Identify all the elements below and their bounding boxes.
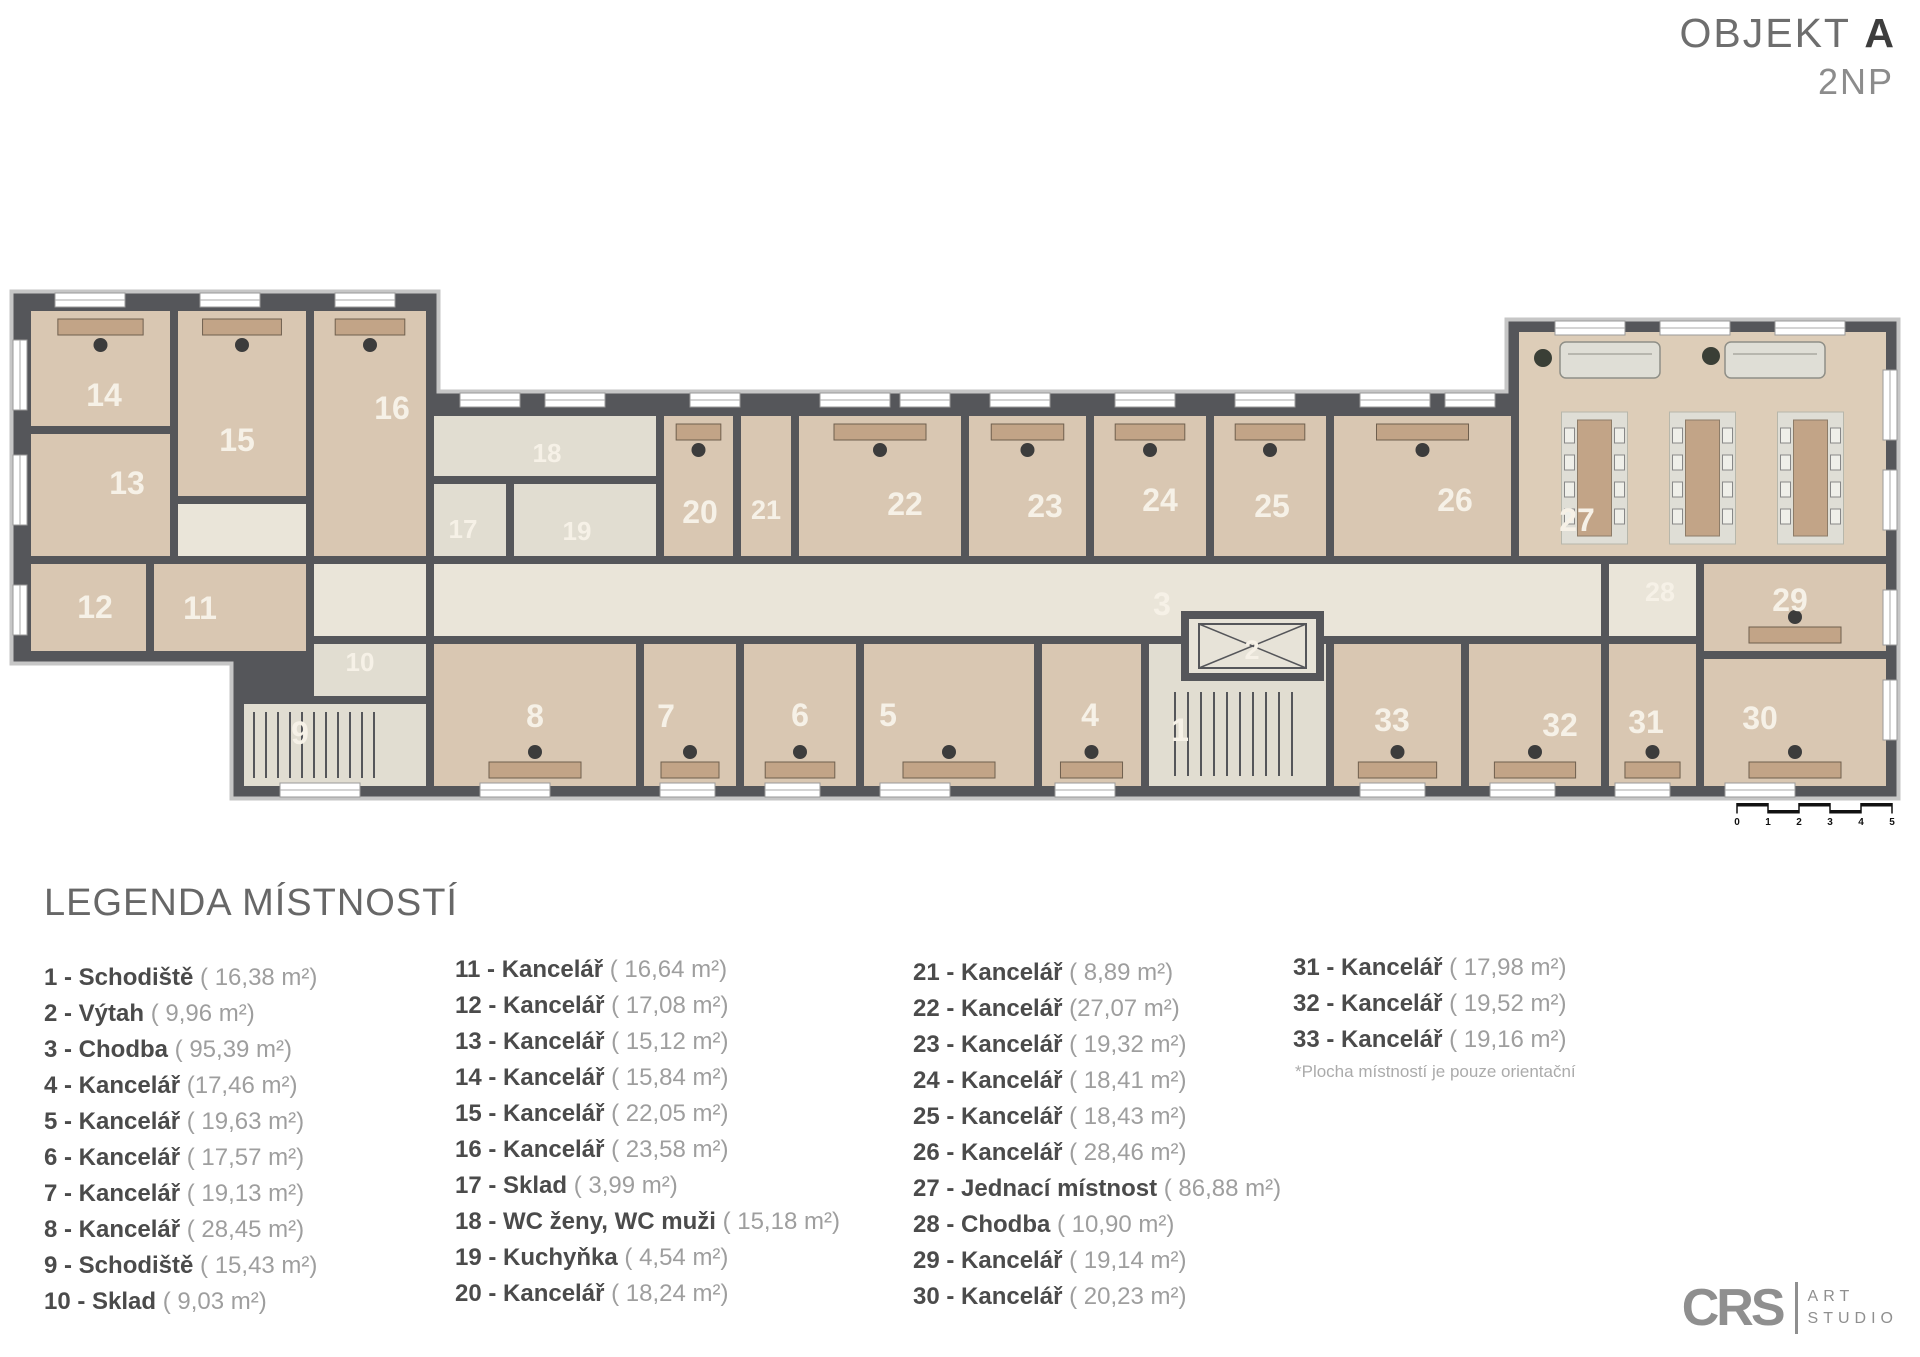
room-number-22: 22 xyxy=(887,486,923,522)
office-chair xyxy=(1021,443,1035,457)
legend-item-9: 9 - Schodiště ( 15,43 m²) xyxy=(44,1248,484,1284)
room-number-32: 32 xyxy=(1542,707,1578,743)
legend-item-25: 25 - Kancelář ( 18,43 m²) xyxy=(913,1099,1353,1135)
meeting-table xyxy=(1794,420,1828,536)
meeting-table xyxy=(1686,420,1720,536)
meeting-chair xyxy=(1723,509,1733,524)
scalebar-tick xyxy=(1829,803,1831,814)
legend-item-14: 14 - Kancelář ( 15,84 m²) xyxy=(455,1060,895,1096)
logo-word-art: ART xyxy=(1808,1286,1898,1308)
desk xyxy=(1749,762,1841,778)
desk xyxy=(1494,762,1575,778)
room-corridor xyxy=(174,500,310,560)
legend-column-2: 11 - Kancelář ( 16,64 m²)12 - Kancelář (… xyxy=(455,952,895,1312)
sofa xyxy=(1560,342,1660,378)
room-number-31: 31 xyxy=(1628,704,1664,740)
office-chair xyxy=(363,338,377,352)
meeting-chair xyxy=(1615,509,1625,524)
office-chair xyxy=(94,338,108,352)
office-chair xyxy=(1788,745,1802,759)
room-number-16: 16 xyxy=(374,390,410,426)
office-chair xyxy=(692,443,706,457)
office-chair xyxy=(1416,443,1430,457)
meeting-chair xyxy=(1565,428,1575,443)
legend-item-30: 30 - Kancelář ( 20,23 m²) xyxy=(913,1279,1353,1315)
legend-item-3: 3 - Chodba ( 95,39 m²) xyxy=(44,1032,484,1068)
legend-item-19: 19 - Kuchyňka ( 4,54 m²) xyxy=(455,1240,895,1276)
office-chair xyxy=(528,745,542,759)
room-number-30: 30 xyxy=(1742,700,1778,736)
scalebar-label: 1 xyxy=(1765,817,1771,828)
legend-column-4: 31 - Kancelář ( 17,98 m²)32 - Kancelář (… xyxy=(1293,950,1733,1058)
legend-note: *Plocha místností je pouze orientační xyxy=(1295,1062,1576,1082)
desk xyxy=(1749,627,1841,643)
room-3 xyxy=(430,560,1605,640)
room-number-15: 15 xyxy=(219,422,255,458)
scalebar-label: 2 xyxy=(1796,817,1802,828)
desk xyxy=(203,319,282,335)
legend-item-10: 10 - Sklad ( 9,03 m²) xyxy=(44,1284,484,1320)
meeting-chair xyxy=(1673,455,1683,470)
legend-item-13: 13 - Kancelář ( 15,12 m²) xyxy=(455,1024,895,1060)
desk xyxy=(1625,762,1680,778)
meeting-chair xyxy=(1781,509,1791,524)
scalebar-segment xyxy=(1799,803,1830,807)
room-number-27: 27 xyxy=(1559,502,1595,538)
room-number-17: 17 xyxy=(449,514,478,544)
office-chair xyxy=(793,745,807,759)
room-number-9: 9 xyxy=(291,715,309,751)
legend-item-27: 27 - Jednací místnost ( 86,88 m²) xyxy=(913,1171,1353,1207)
room-number-1: 1 xyxy=(1171,712,1189,748)
legend-item-15: 15 - Kancelář ( 22,05 m²) xyxy=(455,1096,895,1132)
scalebar-label: 0 xyxy=(1734,817,1740,828)
legend-item-33: 33 - Kancelář ( 19,16 m²) xyxy=(1293,1022,1733,1058)
scalebar-tick xyxy=(1860,803,1862,814)
page: OBJEKT A 2NP 141516131211109318171920212… xyxy=(0,0,1920,1357)
room-number-7: 7 xyxy=(657,698,675,734)
room-number-28: 28 xyxy=(1645,577,1675,607)
desk xyxy=(661,762,719,778)
scalebar-segment xyxy=(1861,803,1892,807)
sofa xyxy=(1725,342,1825,378)
meeting-chair xyxy=(1781,455,1791,470)
meeting-chair xyxy=(1673,428,1683,443)
meeting-chair xyxy=(1673,482,1683,497)
room-number-12: 12 xyxy=(77,589,113,625)
desk xyxy=(1060,762,1122,778)
room-number-3: 3 xyxy=(1153,586,1171,622)
room-number-11: 11 xyxy=(183,590,217,626)
room-13 xyxy=(27,430,174,560)
plant xyxy=(1534,349,1552,367)
desk xyxy=(991,424,1064,440)
legend-item-24: 24 - Kancelář ( 18,41 m²) xyxy=(913,1063,1353,1099)
office-chair xyxy=(1391,745,1405,759)
room-number-24: 24 xyxy=(1142,482,1178,518)
desk xyxy=(1115,424,1185,440)
office-chair xyxy=(1646,745,1660,759)
scalebar-label: 3 xyxy=(1827,817,1833,828)
room-9 xyxy=(240,700,430,790)
legend-item-16: 16 - Kancelář ( 23,58 m²) xyxy=(455,1132,895,1168)
desk xyxy=(58,319,143,335)
room-number-4: 4 xyxy=(1081,697,1099,733)
desk xyxy=(765,762,835,778)
legend-item-18: 18 - WC ženy, WC muži ( 15,18 m²) xyxy=(455,1204,895,1240)
floor-plan: 1415161312111093181719202122232425262728… xyxy=(0,0,1920,845)
room-number-6: 6 xyxy=(791,697,809,733)
office-chair xyxy=(1143,443,1157,457)
desk xyxy=(1235,424,1305,440)
meeting-chair xyxy=(1831,455,1841,470)
legend-item-7: 7 - Kancelář ( 19,13 m²) xyxy=(44,1176,484,1212)
room-15 xyxy=(174,307,310,500)
room-number-10: 10 xyxy=(346,647,375,677)
scalebar-segment xyxy=(1768,810,1799,814)
scalebar-tick xyxy=(1891,803,1893,814)
logo-initials: CRS xyxy=(1682,1282,1783,1334)
legend-item-6: 6 - Kancelář ( 17,57 m²) xyxy=(44,1140,484,1176)
desk xyxy=(335,319,405,335)
office-chair xyxy=(1263,443,1277,457)
legend-item-12: 12 - Kancelář ( 17,08 m²) xyxy=(455,988,895,1024)
room-number-13: 13 xyxy=(109,465,145,501)
desk xyxy=(1377,424,1469,440)
meeting-chair xyxy=(1615,482,1625,497)
legend-item-4: 4 - Kancelář (17,46 m²) xyxy=(44,1068,484,1104)
meeting-chair xyxy=(1723,455,1733,470)
room-21 xyxy=(737,412,795,560)
plant xyxy=(1702,347,1720,365)
scalebar-label: 5 xyxy=(1889,817,1895,828)
logo-divider xyxy=(1795,1282,1798,1334)
scalebar-tick xyxy=(1736,803,1738,814)
meeting-chair xyxy=(1615,455,1625,470)
room-number-8: 8 xyxy=(526,698,544,734)
legend-item-5: 5 - Kancelář ( 19,63 m²) xyxy=(44,1104,484,1140)
meeting-chair xyxy=(1781,482,1791,497)
legend-column-1: 1 - Schodiště ( 16,38 m²)2 - Výtah ( 9,9… xyxy=(44,960,484,1320)
legend-item-21: 21 - Kancelář ( 8,89 m²) xyxy=(913,955,1353,991)
office-chair xyxy=(235,338,249,352)
meeting-chair xyxy=(1723,482,1733,497)
meeting-chair xyxy=(1781,428,1791,443)
room-number-26: 26 xyxy=(1437,482,1473,518)
meeting-chair xyxy=(1615,428,1625,443)
legend-item-20: 20 - Kancelář ( 18,24 m²) xyxy=(455,1276,895,1312)
legend-item-29: 29 - Kancelář ( 19,14 m²) xyxy=(913,1243,1353,1279)
room-11 xyxy=(150,560,310,655)
room-number-20: 20 xyxy=(682,494,718,530)
scalebar-tick xyxy=(1767,803,1769,814)
room-number-18: 18 xyxy=(533,438,562,468)
desk xyxy=(676,424,721,440)
desk xyxy=(834,424,926,440)
desk xyxy=(489,762,581,778)
room-number-23: 23 xyxy=(1027,488,1063,524)
legend-item-1: 1 - Schodiště ( 16,38 m²) xyxy=(44,960,484,996)
meeting-chair xyxy=(1831,428,1841,443)
office-chair xyxy=(873,443,887,457)
meeting-chair xyxy=(1831,482,1841,497)
room-number-5: 5 xyxy=(879,697,897,733)
room-number-19: 19 xyxy=(563,516,592,546)
scalebar-segment xyxy=(1737,803,1768,807)
office-chair xyxy=(942,745,956,759)
legend-column-3: 21 - Kancelář ( 8,89 m²)22 - Kancelář (2… xyxy=(913,955,1353,1315)
legend-item-8: 8 - Kancelář ( 28,45 m²) xyxy=(44,1212,484,1248)
room-number-14: 14 xyxy=(86,377,122,413)
office-chair xyxy=(1528,745,1542,759)
office-chair xyxy=(1085,745,1099,759)
legend-item-26: 26 - Kancelář ( 28,46 m²) xyxy=(913,1135,1353,1171)
legend-item-31: 31 - Kancelář ( 17,98 m²) xyxy=(1293,950,1733,986)
legend-item-32: 32 - Kancelář ( 19,52 m²) xyxy=(1293,986,1733,1022)
scalebar-segment xyxy=(1830,810,1861,814)
meeting-chair xyxy=(1723,428,1733,443)
room-number-2: 2 xyxy=(1244,635,1259,665)
meeting-chair xyxy=(1831,509,1841,524)
desk xyxy=(903,762,995,778)
room-number-25: 25 xyxy=(1254,488,1290,524)
meeting-chair xyxy=(1565,482,1575,497)
legend-item-28: 28 - Chodba ( 10,90 m²) xyxy=(913,1207,1353,1243)
scalebar-tick xyxy=(1798,803,1800,814)
room-number-29: 29 xyxy=(1772,582,1808,618)
room-number-33: 33 xyxy=(1374,702,1410,738)
legend-item-23: 23 - Kancelář ( 19,32 m²) xyxy=(913,1027,1353,1063)
legend-item-11: 11 - Kancelář ( 16,64 m²) xyxy=(455,952,895,988)
office-chair xyxy=(683,745,697,759)
meeting-chair xyxy=(1565,455,1575,470)
logo-word-studio: STUDIO xyxy=(1808,1308,1898,1330)
logo-words: ART STUDIO xyxy=(1808,1286,1898,1330)
room-number-21: 21 xyxy=(751,495,781,525)
legend-item-17: 17 - Sklad ( 3,99 m²) xyxy=(455,1168,895,1204)
legend-item-2: 2 - Výtah ( 9,96 m²) xyxy=(44,996,484,1032)
desk xyxy=(1358,762,1436,778)
studio-logo: CRS ART STUDIO xyxy=(1682,1282,1898,1334)
legend-heading: LEGENDA MÍSTNOSTÍ xyxy=(44,882,458,925)
legend-item-22: 22 - Kancelář (27,07 m²) xyxy=(913,991,1353,1027)
meeting-chair xyxy=(1673,509,1683,524)
scalebar-label: 4 xyxy=(1858,817,1864,828)
